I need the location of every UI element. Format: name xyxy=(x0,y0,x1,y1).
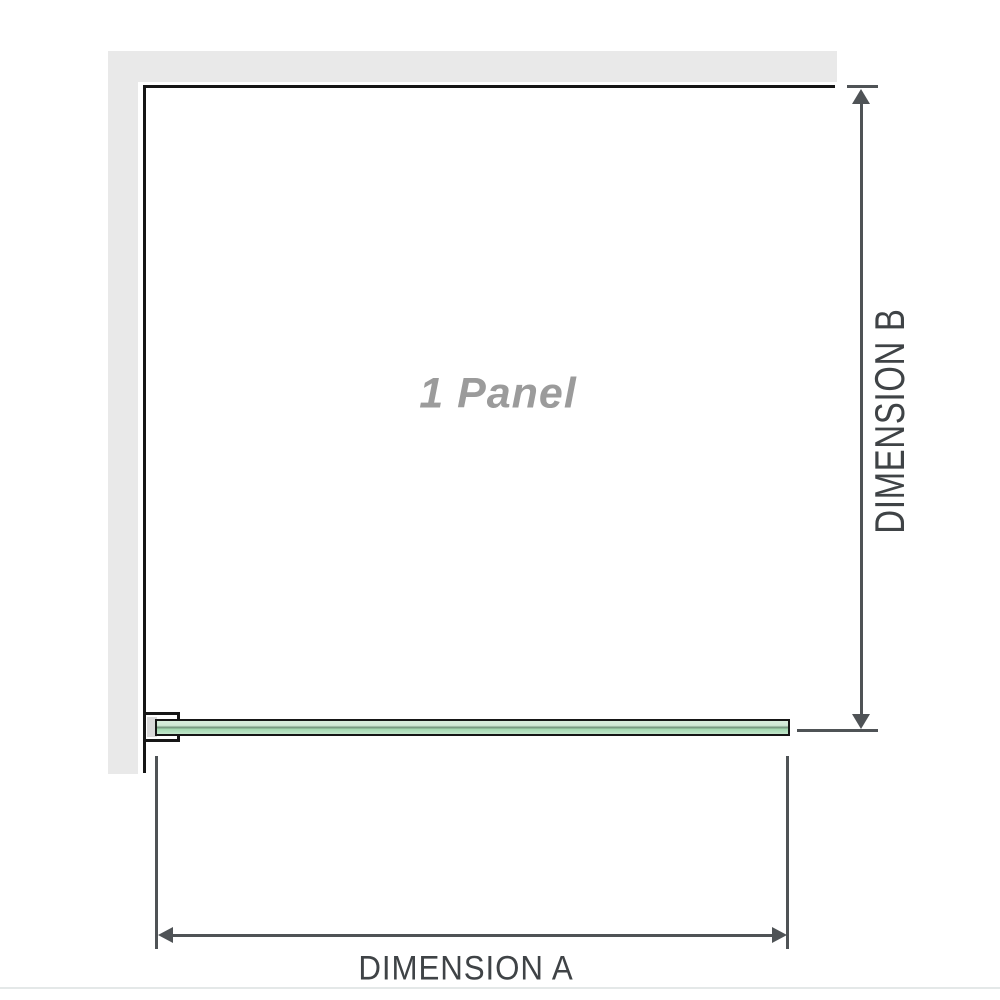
dimension-a-arrow-right-icon xyxy=(772,927,787,943)
wall-top-bar xyxy=(108,51,837,82)
wall-left-bar xyxy=(108,51,138,774)
dimension-a-extension-line-left xyxy=(155,756,158,949)
dimension-b-label: DIMENSION B xyxy=(866,308,914,533)
dimension-b-tick-top xyxy=(847,85,878,88)
panel-count-label: 1 Panel xyxy=(419,370,577,419)
panel-outline-left xyxy=(143,85,146,773)
dimension-a-line xyxy=(170,934,775,937)
dimension-b-arrow-up-icon xyxy=(852,89,870,104)
dimension-b-line xyxy=(860,92,863,720)
glass-panel-strip xyxy=(155,719,790,736)
dimension-b-arrow-down-icon xyxy=(852,714,870,729)
dimension-a-label: DIMENSION A xyxy=(358,950,573,989)
dimension-a-extension-line-right xyxy=(786,756,789,949)
panel-dimension-diagram: 1 Panel DIMENSION B DIMENSION A xyxy=(0,0,1000,1000)
bottom-divider-line xyxy=(0,987,1000,989)
dimension-a-arrow-left-icon xyxy=(158,927,173,943)
panel-outline-top xyxy=(143,85,835,88)
dimension-b-tick-bottom xyxy=(797,729,878,732)
